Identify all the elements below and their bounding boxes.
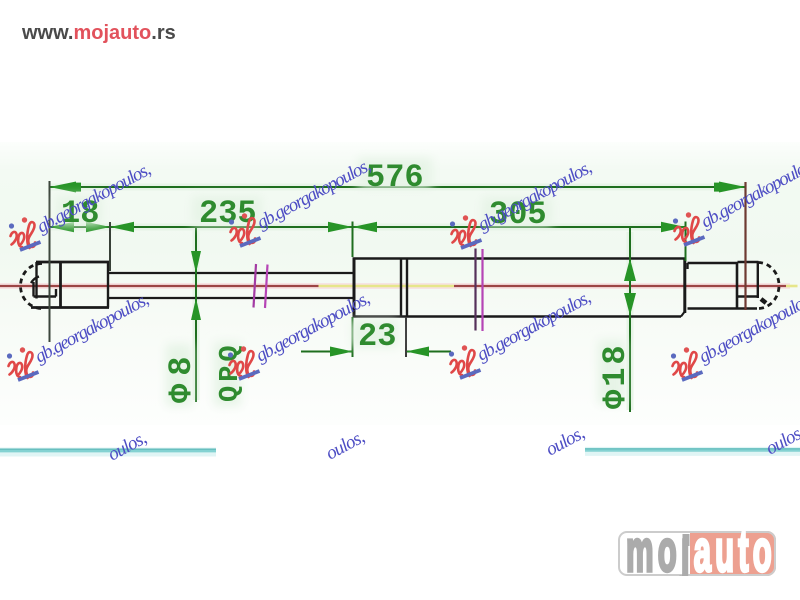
svg-text:moȷauto: moȷauto <box>626 519 776 584</box>
svg-text:www.mojauto.rs: www.mojauto.rs <box>21 22 176 44</box>
svg-text:oulos,: oulos, <box>104 428 149 466</box>
svg-text:576: 576 <box>366 159 424 196</box>
svg-text:23: 23 <box>358 318 396 355</box>
svg-text:oulos,: oulos, <box>322 427 367 465</box>
svg-text:oulos,: oulos, <box>542 423 587 461</box>
svg-text:Φ8: Φ8 <box>163 349 200 403</box>
svg-text:Φ18: Φ18 <box>597 342 634 409</box>
